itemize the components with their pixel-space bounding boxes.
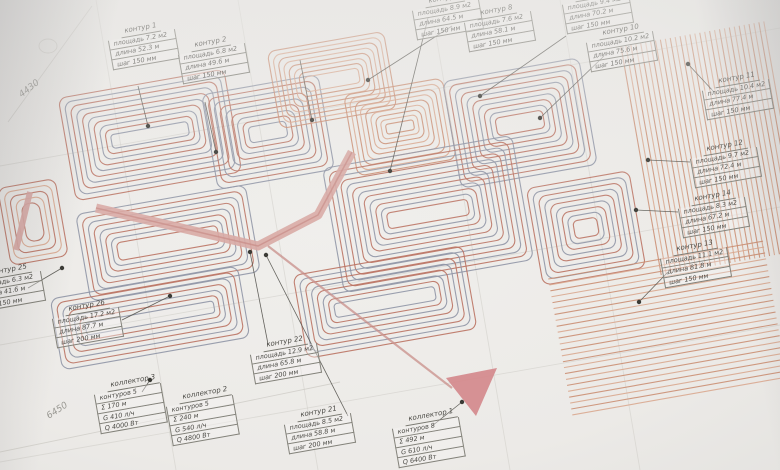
leader-dot [460,400,464,404]
pipe-line [566,342,780,380]
pipe-line [375,109,425,145]
pipe-line [563,324,778,362]
leader-dot [310,118,314,122]
leader-dot [646,158,650,162]
pipe-line [555,277,770,315]
leader-dot [637,300,641,304]
pipe-line [202,74,335,189]
pipe-line [562,318,777,356]
pipe-line [556,283,771,321]
pipe-line [3,184,62,259]
pipe-line [554,271,769,309]
pipe-line [293,246,477,359]
pipe-line [641,43,681,271]
leader-dot [478,94,482,98]
pipe-line [369,182,487,247]
pipe-line [357,170,498,258]
pipe-line [483,98,557,147]
pipe-line [231,103,306,160]
pipe-line [81,92,218,177]
pipe-line [544,188,629,268]
leader-dot [366,78,370,82]
pipe-line [105,116,196,155]
pipe-line [646,42,686,270]
pipe-line [380,193,475,235]
pipe-line [375,187,482,240]
pipe-line [316,269,454,335]
pipe-line [552,265,767,303]
pipe-line [567,211,605,244]
heating-coil [344,78,457,176]
pipe-line [454,69,585,176]
pipe-line [568,353,780,391]
pipe-line [538,182,634,273]
pipe-line [565,336,780,374]
pipe-line [489,104,551,142]
blueprint-photo: контур 1площадь 7.2 м2длина 52.3 мшаг 15… [0,0,780,470]
heating-coil [0,179,68,266]
leader-dot [60,266,64,270]
leader-dot [214,150,218,154]
pipe-line [99,110,201,161]
pipe-line [472,87,569,159]
leader-dot [388,169,392,173]
pipe-line [560,306,775,344]
pipe-line [248,121,288,143]
leader-line [636,210,678,212]
pipe-line [571,371,780,409]
leader-line [390,18,428,171]
leader-line [648,160,690,162]
pipe-line [310,263,459,341]
leader-dot [686,62,690,66]
pipe-line [363,176,493,252]
leader-dot [264,253,268,257]
pipe-line [495,110,545,136]
leader-dot [168,294,172,298]
pipe-line [558,294,773,332]
heating-coil [293,246,477,359]
leader-dot [146,124,150,128]
pipe-line [93,104,207,166]
pipe-line [559,300,774,338]
leader-dot [248,250,252,254]
pipe-line [573,217,600,239]
pipe-line [344,78,457,176]
pipe-line [636,44,676,272]
pipe-line [567,348,780,386]
pipe-line [225,98,312,167]
pipe-line [572,377,780,415]
pipe-line [328,141,527,287]
pipe-line [557,288,772,326]
heating-coil [526,171,645,286]
pipe-line [386,199,470,229]
pipe-line [564,330,779,368]
pipe-line [631,45,671,273]
leader-dot [538,116,542,120]
leader-dot [634,208,638,212]
heating-coil [202,74,335,189]
pipe-line [550,253,765,291]
axis-bubble [39,39,57,53]
